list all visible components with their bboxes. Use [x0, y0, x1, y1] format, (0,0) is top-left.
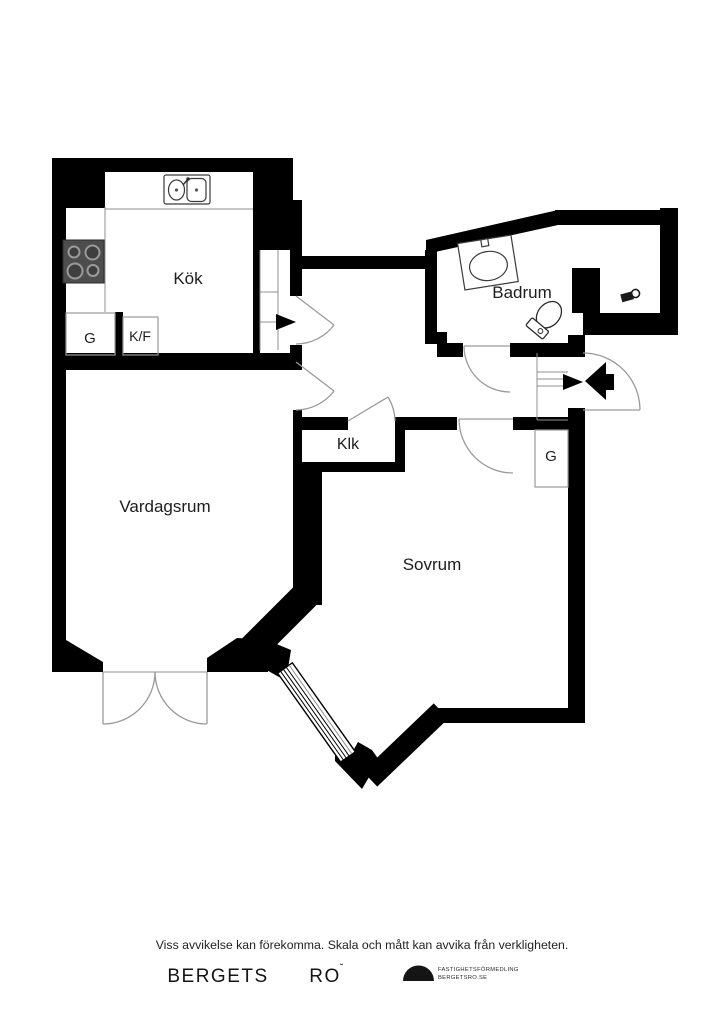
- room-label-closet: Klk: [337, 436, 360, 453]
- room-label-kitchen: Kök: [173, 269, 203, 288]
- room-label-bathroom: Badrum: [492, 283, 552, 302]
- stair-treads: [260, 250, 568, 420]
- brand-trademark: ˘: [339, 963, 344, 974]
- brand-word-ro: RO: [309, 966, 341, 987]
- entry-arrow-icon: [585, 362, 614, 400]
- label-wardrobe-kitchen: G: [84, 330, 96, 347]
- room-label-living-room: Vardagsrum: [119, 497, 210, 516]
- valve-icon: [620, 289, 641, 303]
- kitchen-sink-icon: [164, 175, 210, 204]
- floorplan-drawing: Kök Badrum Klk Vardagsrum Sovrum G K/F G…: [0, 0, 724, 1024]
- footer: Viss avvikelse kan förekomma. Skala och …: [156, 938, 569, 987]
- agency-line-2: BERGETSRO.SE: [438, 975, 487, 981]
- door-swing-arc: [296, 296, 334, 344]
- brand-word-bergets: BERGETS: [167, 966, 268, 987]
- agency-line-1: FASTIGHETSFÖRMEDLING: [438, 966, 519, 973]
- balcony-double-door: [103, 672, 207, 724]
- window-hatch: [278, 663, 356, 762]
- label-wardrobe-bedroom: G: [545, 448, 557, 465]
- label-fridge-freezer: K/F: [129, 328, 151, 344]
- door-swing-arc: [464, 346, 510, 392]
- door-swing-arc: [459, 419, 513, 473]
- agency-dome-logo-icon: [403, 966, 434, 982]
- room-label-bedroom: Sovrum: [403, 555, 462, 574]
- stove-icon: [63, 240, 104, 283]
- floorplan-page: Kök Badrum Klk Vardagsrum Sovrum G K/F G…: [0, 0, 724, 1024]
- kitchen-entry-arrow-icon: [276, 314, 296, 330]
- entry-arrow-small-icon: [563, 374, 583, 390]
- toilet-icon: [526, 297, 567, 340]
- disclaimer-text: Viss avvikelse kan förekomma. Skala och …: [156, 938, 569, 952]
- bathroom-sink-icon: [458, 235, 519, 290]
- walls: [52, 158, 678, 789]
- door-swing-arc: [348, 397, 395, 421]
